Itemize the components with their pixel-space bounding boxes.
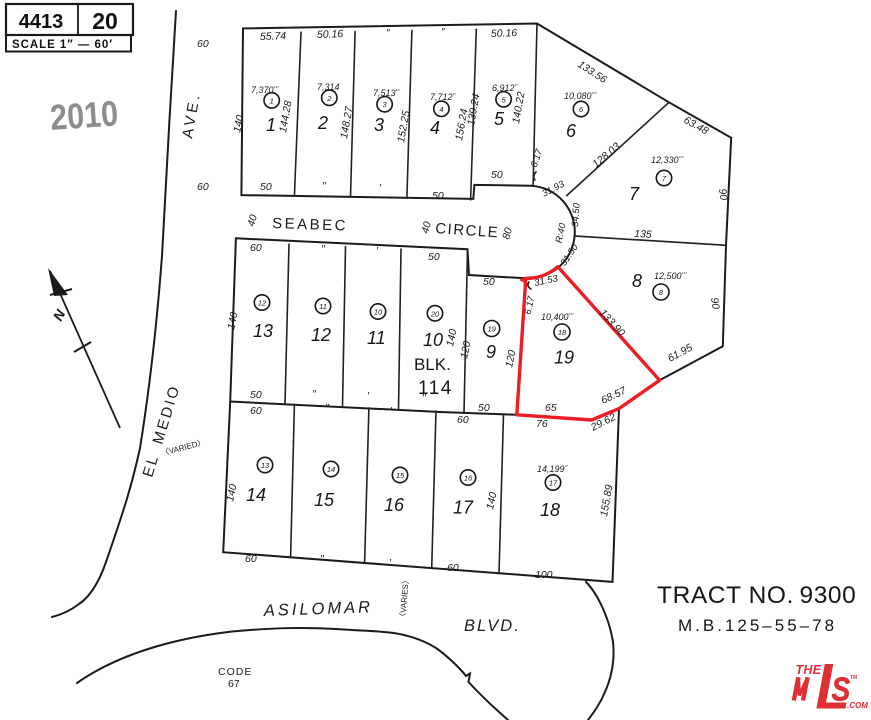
svg-text:17: 17 bbox=[453, 498, 474, 518]
svg-text:TRACT NO. 9300: TRACT NO. 9300 bbox=[657, 582, 856, 609]
svg-text:4413: 4413 bbox=[19, 11, 64, 33]
svg-text:14,199°′: 14,199°′ bbox=[537, 464, 569, 474]
svg-text:60: 60 bbox=[447, 562, 459, 574]
svg-text:8: 8 bbox=[632, 271, 642, 291]
svg-text:11: 11 bbox=[319, 302, 327, 311]
svg-text:14: 14 bbox=[246, 485, 266, 505]
svg-text:20: 20 bbox=[92, 8, 118, 34]
svg-text:CODE: CODE bbox=[218, 666, 252, 678]
svg-text:15: 15 bbox=[396, 471, 405, 480]
svg-text:15: 15 bbox=[314, 490, 335, 510]
svg-text:60: 60 bbox=[197, 181, 209, 193]
svg-text:13: 13 bbox=[253, 321, 273, 341]
svg-text:4: 4 bbox=[439, 105, 443, 114]
svg-text:17: 17 bbox=[549, 479, 558, 488]
svg-text:SEABEC: SEABEC bbox=[272, 215, 348, 235]
svg-text:76: 76 bbox=[536, 418, 548, 430]
svg-text:60: 60 bbox=[457, 414, 469, 426]
svg-text:60: 60 bbox=[250, 405, 262, 417]
svg-text:50: 50 bbox=[483, 276, 495, 288]
svg-text:34.50: 34.50 bbox=[570, 202, 583, 227]
svg-text:7: 7 bbox=[629, 184, 640, 204]
svg-text:16: 16 bbox=[384, 495, 405, 515]
svg-text:12: 12 bbox=[311, 325, 331, 345]
svg-text:50.16: 50.16 bbox=[491, 27, 518, 40]
svg-text:65: 65 bbox=[545, 402, 557, 414]
svg-text:.COM: .COM bbox=[847, 701, 868, 710]
svg-text:50: 50 bbox=[260, 181, 272, 193]
svg-text:50: 50 bbox=[432, 190, 444, 202]
svg-text:50: 50 bbox=[491, 169, 503, 181]
svg-text:50: 50 bbox=[250, 389, 262, 401]
svg-text:90: 90 bbox=[716, 188, 730, 201]
svg-text:60: 60 bbox=[197, 38, 209, 50]
svg-text:67: 67 bbox=[228, 678, 240, 690]
svg-text:11: 11 bbox=[367, 328, 386, 348]
svg-text:9: 9 bbox=[486, 342, 496, 362]
svg-text:13: 13 bbox=[261, 461, 270, 470]
svg-text:19: 19 bbox=[554, 348, 574, 368]
svg-text:BLK.: BLK. bbox=[414, 355, 451, 374]
svg-text:6: 6 bbox=[566, 121, 577, 141]
svg-text:18: 18 bbox=[558, 328, 567, 337]
svg-text:2: 2 bbox=[317, 113, 328, 133]
svg-text:TM: TM bbox=[850, 675, 857, 681]
svg-text:135: 135 bbox=[634, 228, 652, 241]
svg-text:55.74: 55.74 bbox=[260, 30, 287, 43]
svg-text:THE: THE bbox=[796, 663, 822, 677]
svg-text:2010: 2010 bbox=[49, 94, 120, 139]
svg-text:60: 60 bbox=[245, 553, 257, 565]
svg-text:19: 19 bbox=[488, 325, 497, 334]
svg-text:12: 12 bbox=[258, 299, 267, 308]
svg-text:4: 4 bbox=[430, 118, 440, 138]
svg-text:50: 50 bbox=[428, 251, 440, 263]
svg-text:50.16: 50.16 bbox=[317, 28, 344, 41]
svg-text:M.B.125–55–78: M.B.125–55–78 bbox=[678, 616, 837, 635]
svg-text:10: 10 bbox=[374, 308, 383, 317]
svg-text:50: 50 bbox=[478, 402, 490, 414]
svg-text:18: 18 bbox=[540, 500, 560, 520]
svg-text:20: 20 bbox=[430, 309, 440, 318]
svg-text:14: 14 bbox=[327, 465, 335, 474]
svg-text:2: 2 bbox=[326, 94, 332, 103]
svg-text:90: 90 bbox=[708, 297, 722, 310]
svg-text:100: 100 bbox=[535, 569, 553, 581]
svg-text:60: 60 bbox=[250, 242, 262, 254]
svg-text:ASILOMAR: ASILOMAR bbox=[263, 598, 374, 620]
svg-text:BLVD.: BLVD. bbox=[464, 617, 521, 635]
svg-text:10: 10 bbox=[423, 330, 443, 350]
svg-text:1: 1 bbox=[270, 96, 274, 105]
svg-text:16: 16 bbox=[464, 474, 473, 483]
svg-text:3: 3 bbox=[374, 115, 384, 135]
svg-text:SCALE 1″ — 60′: SCALE 1″ — 60′ bbox=[12, 39, 112, 51]
svg-text:5: 5 bbox=[494, 109, 505, 129]
svg-text:1: 1 bbox=[266, 115, 276, 135]
